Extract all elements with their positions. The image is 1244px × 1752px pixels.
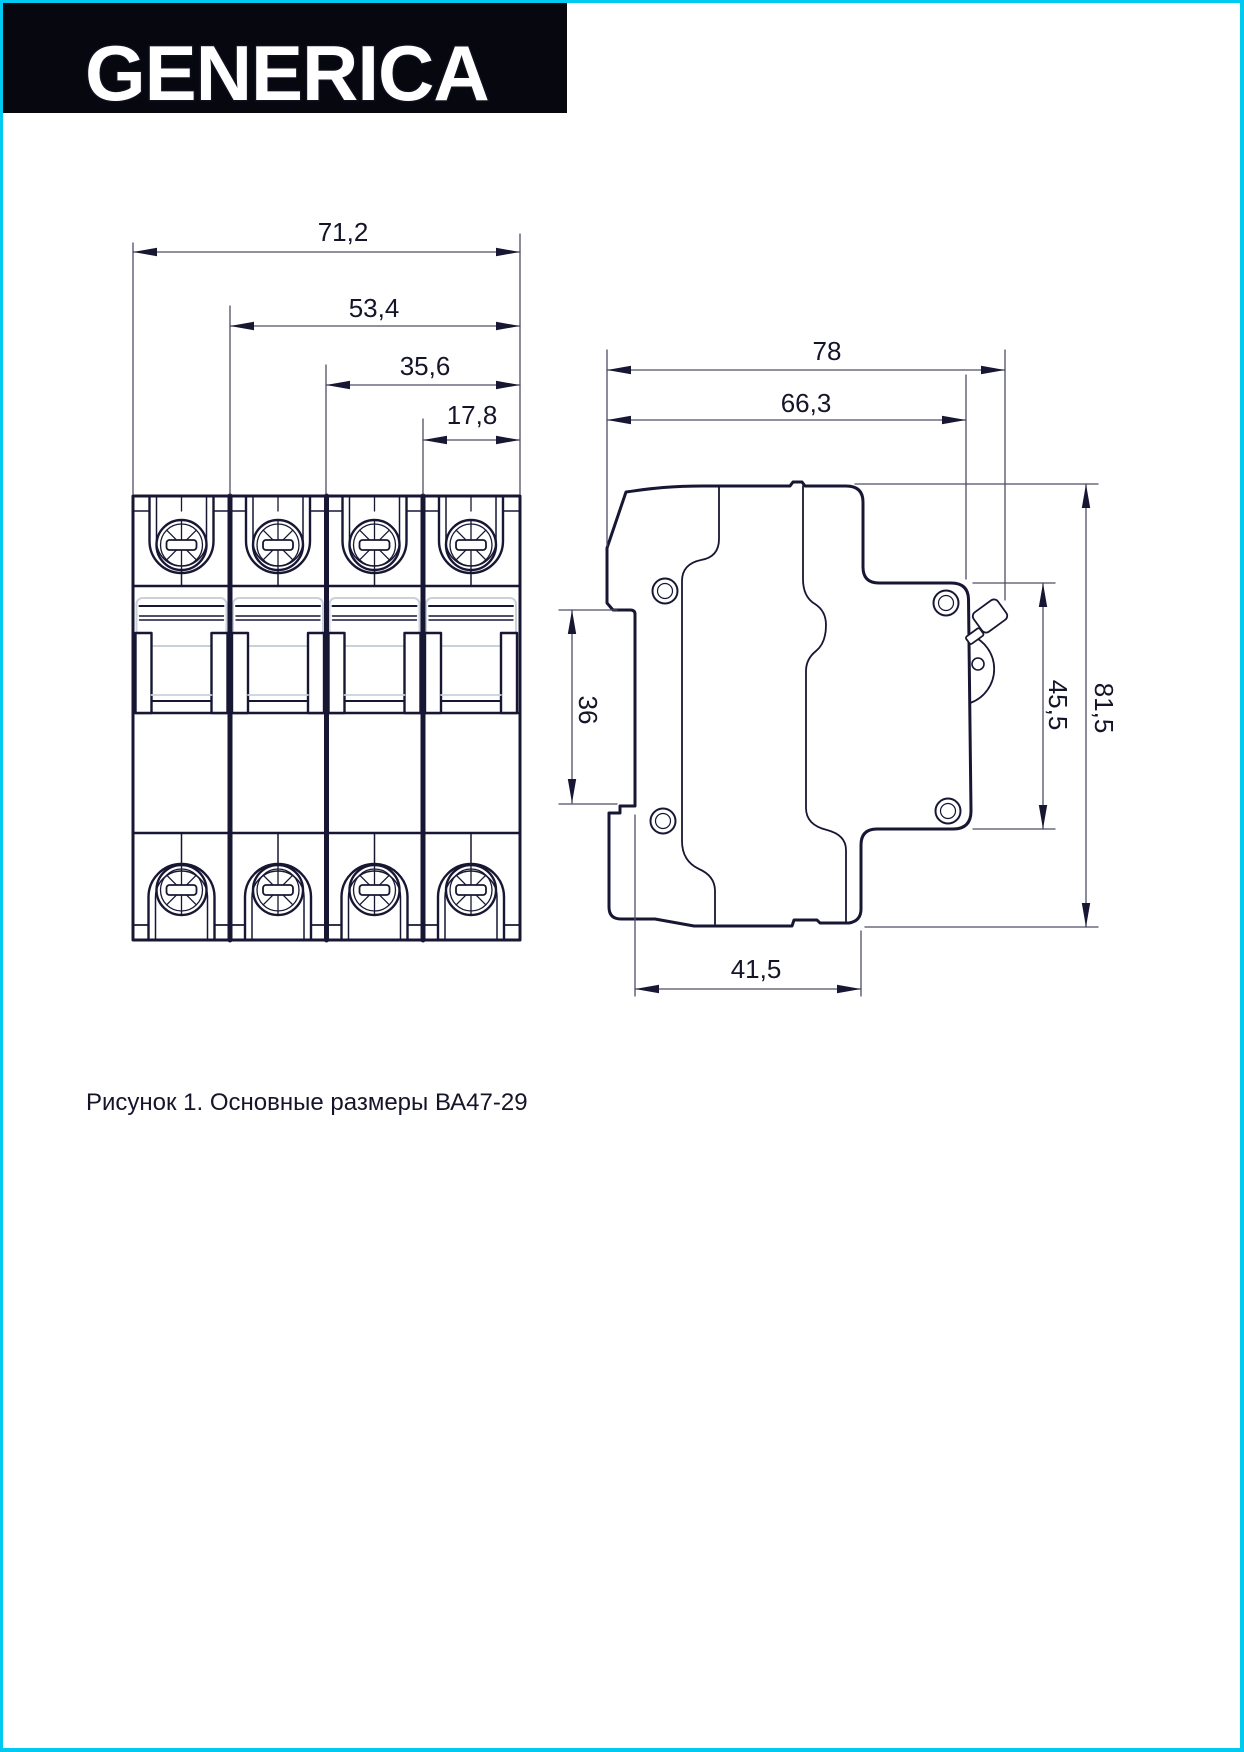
dim-label-front-1pole-width: 17,8 bbox=[447, 402, 498, 428]
dim-label-side-total-height: 81,5 bbox=[1091, 683, 1117, 734]
dim-label-side-front-height: 45,5 bbox=[1045, 680, 1071, 731]
side-view bbox=[607, 482, 1009, 926]
datasheet-page: GENERICA bbox=[0, 0, 1244, 1752]
dim-label-side-base-depth: 41,5 bbox=[731, 956, 782, 982]
dim-label-front-3pole-width: 53,4 bbox=[349, 295, 400, 321]
side-body-outline bbox=[607, 482, 971, 926]
front-view bbox=[133, 496, 520, 940]
dim-label-front-2pole-width: 35,6 bbox=[400, 353, 451, 379]
dim-label-side-total-depth: 78 bbox=[813, 338, 842, 364]
dim-label-front-total-width: 71,2 bbox=[318, 219, 369, 245]
figure-caption: Рисунок 1. Основные размеры ВА47-29 bbox=[86, 1089, 528, 1117]
dim-label-side-din-recess: 36 bbox=[575, 696, 601, 725]
dim-label-side-body-depth: 66,3 bbox=[781, 390, 832, 416]
din-latch bbox=[965, 597, 1009, 703]
dimensional-drawing bbox=[3, 3, 1244, 1063]
